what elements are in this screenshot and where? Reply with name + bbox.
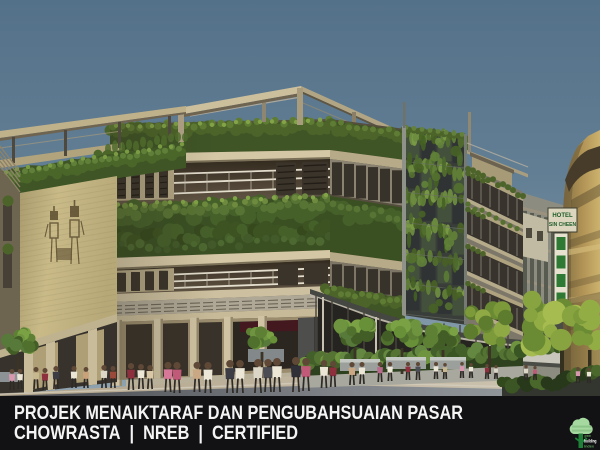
svg-text:green: green [585,434,592,438]
svg-text:index: index [584,445,595,449]
svg-text:SIN CHEEN: SIN CHEEN [549,222,577,228]
svg-text:HOTEL: HOTEL [552,213,573,219]
svg-text:PROJEK MENAIKTARAF DAN PENGUBA: PROJEK MENAIKTARAF DAN PENGUBAHSUAIAN PA… [14,403,463,424]
svg-text:CHOWRASTA | NREB | CERTIFI: CHOWRASTA | NREB | CERTIFIED [14,423,298,444]
